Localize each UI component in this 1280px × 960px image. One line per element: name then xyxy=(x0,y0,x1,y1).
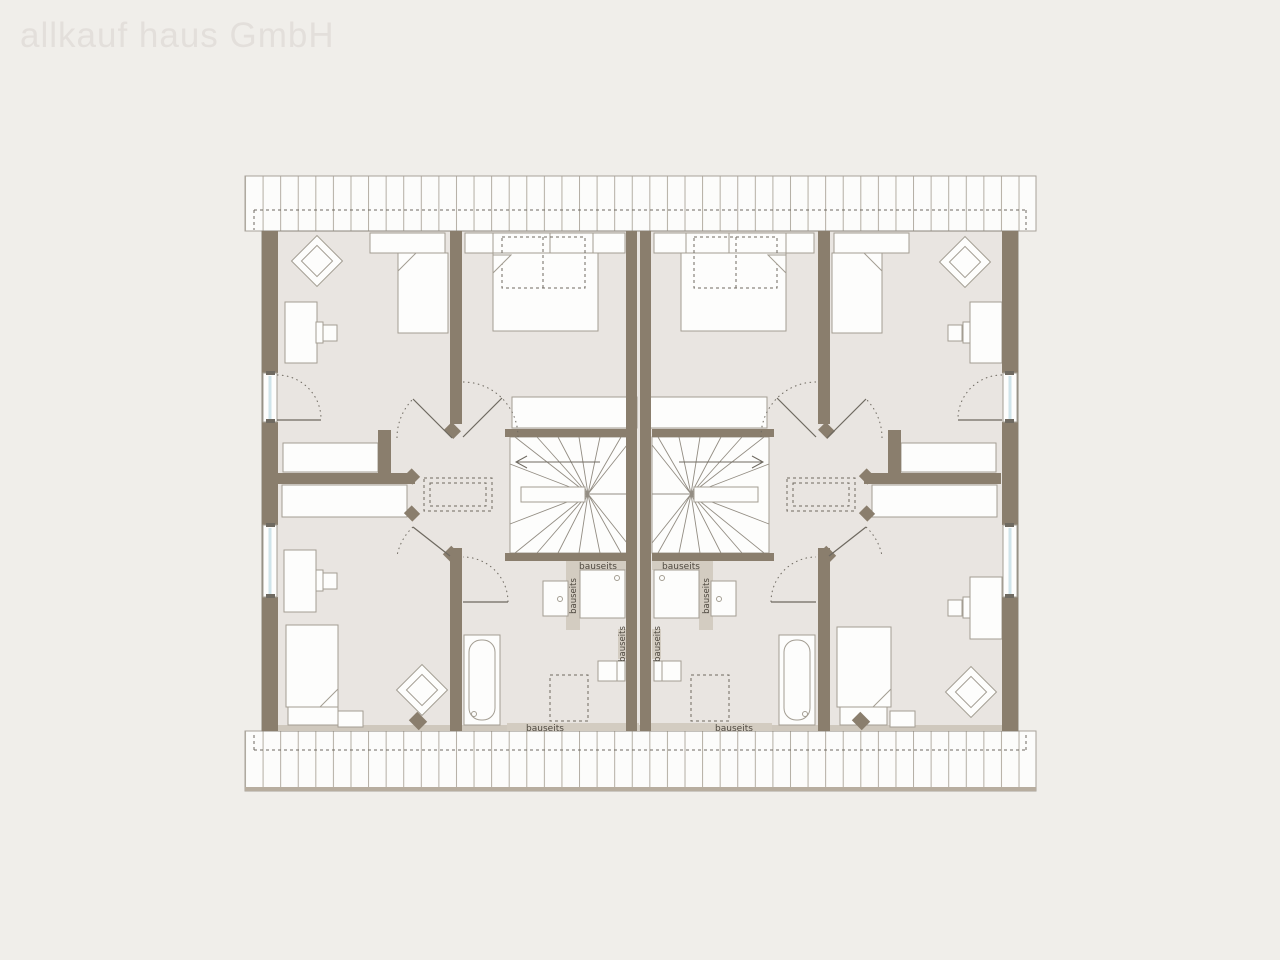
single-bed xyxy=(832,253,882,333)
bauseits-label: bauseits xyxy=(653,626,663,662)
wc xyxy=(711,581,736,616)
sideboard xyxy=(872,485,997,517)
bauseits-label: bauseits xyxy=(526,724,564,734)
desk xyxy=(285,302,317,363)
desk-chair xyxy=(948,597,970,618)
floor-plan-page: allkauf haus GmbH xyxy=(0,0,1280,960)
desk-chair xyxy=(948,322,970,343)
top-eaves-band xyxy=(245,176,1036,231)
desk xyxy=(970,302,1002,363)
bottom-eaves-edge xyxy=(245,787,1036,791)
bottom-eaves-band xyxy=(245,731,1036,791)
sideboard xyxy=(282,485,407,517)
single-bed xyxy=(398,253,448,333)
bath-cabinet xyxy=(654,661,681,681)
desk xyxy=(970,577,1002,639)
wc xyxy=(543,581,568,616)
stair-eye-left xyxy=(521,487,585,502)
stair-eye-right xyxy=(694,487,758,502)
window-right-top xyxy=(1003,371,1017,423)
window-left-top xyxy=(263,371,277,423)
shelf xyxy=(370,233,445,253)
sideboard xyxy=(283,443,378,472)
desk xyxy=(284,550,316,612)
staircase-left xyxy=(510,437,627,553)
wardrobe xyxy=(642,397,767,428)
bauseits-label: bauseits xyxy=(579,562,617,572)
desk-chair xyxy=(316,570,337,591)
headboard-shelf xyxy=(654,233,814,253)
shelf xyxy=(834,233,909,253)
shower xyxy=(654,570,699,618)
shower xyxy=(580,570,625,618)
headboard-shelf xyxy=(465,233,625,253)
side-table xyxy=(338,711,363,727)
bauseits-label: bauseits xyxy=(569,578,579,614)
bauseits-label: bauseits xyxy=(662,562,700,572)
desk-chair xyxy=(316,322,337,343)
bathtub xyxy=(779,635,815,725)
bauseits-label: bauseits xyxy=(618,626,628,662)
sideboard xyxy=(901,443,996,472)
side-table xyxy=(890,711,915,727)
staircase-right xyxy=(652,437,769,553)
wardrobe xyxy=(512,397,637,428)
bauseits-label: bauseits xyxy=(715,724,753,734)
window-right-bottom xyxy=(1003,523,1017,598)
floor-plan-drawing: bauseits bauseits bauseits bauseits baus… xyxy=(0,0,1280,960)
bauseits-label: bauseits xyxy=(702,578,712,614)
bed-bench xyxy=(288,707,338,725)
bathtub xyxy=(464,635,500,725)
bath-cabinet xyxy=(598,661,625,681)
window-left-bottom xyxy=(263,523,277,598)
